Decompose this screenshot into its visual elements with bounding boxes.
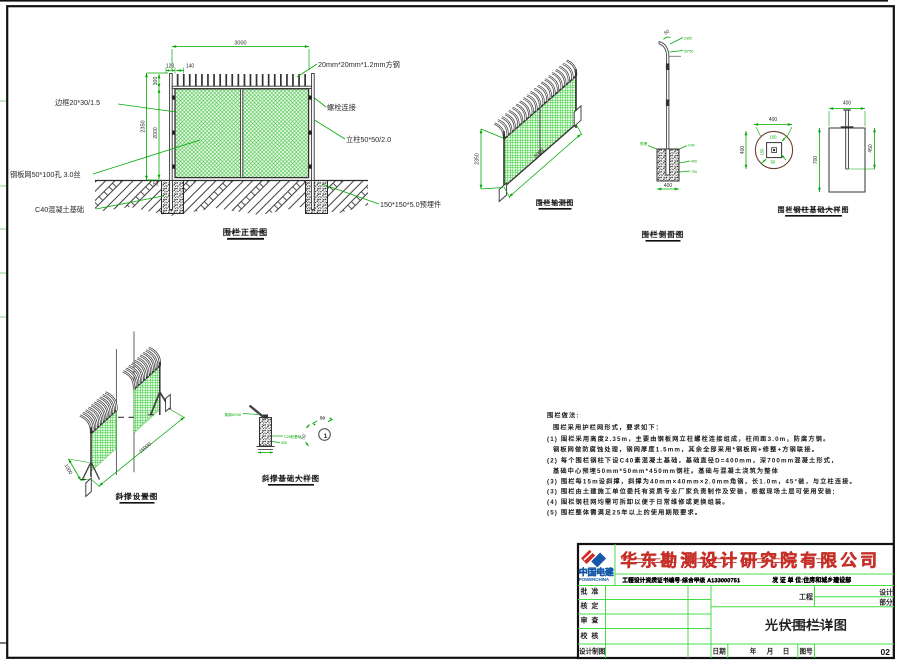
svg-text:400: 400 (664, 183, 673, 189)
svg-text:图号: 图号 (800, 647, 814, 656)
svg-text:400: 400 (843, 101, 852, 107)
svg-text:50: 50 (153, 182, 159, 188)
svg-text:700: 700 (691, 170, 697, 174)
svg-text:光伏围栏详图: 光伏围栏详图 (765, 617, 848, 632)
svg-text:围栏采用护栏网形式，要求如下：: 围栏采用护栏网形式，要求如下： (553, 424, 663, 432)
svg-text:450: 450 (868, 144, 874, 153)
svg-text:斜撑设置图: 斜撑设置图 (115, 492, 159, 501)
svg-text:140: 140 (186, 64, 195, 70)
svg-text:300: 300 (153, 77, 159, 86)
svg-text:工程: 工程 (799, 592, 813, 601)
svg-text:02: 02 (881, 647, 891, 657)
svg-text:设计: 设计 (879, 588, 893, 597)
svg-text:日: 日 (783, 648, 790, 656)
svg-text:边框20*30/1.5: 边框20*30/1.5 (55, 98, 100, 107)
svg-text:钢板网做防腐蚀处理，钢网厚度1.5mm，其余全部采用*钢板网: 钢板网做防腐蚀处理，钢网厚度1.5mm，其余全部采用*钢板网+修整+方钢联接。 (553, 446, 819, 454)
svg-text:围栏侧面图: 围栏侧面图 (642, 230, 685, 239)
svg-text:POWERCHINA: POWERCHINA (579, 577, 610, 582)
svg-text:部分: 部分 (879, 598, 893, 607)
svg-text:钢板网50*100孔 3.0丝: 钢板网50*100孔 3.0丝 (10, 170, 81, 179)
svg-text:核 定: 核 定 (581, 601, 599, 610)
svg-text:批 准: 批 准 (581, 587, 599, 596)
svg-text:(5) 围栏整体需满足25年以上的使用期限要求。: (5) 围栏整体需满足25年以上的使用期限要求。 (547, 509, 702, 517)
svg-text:(4) 围栏钢柱网均需可拆卸以便于日常维修或更换组装。: (4) 围栏钢柱网均需可拆卸以便于日常维修或更换组装。 (547, 498, 730, 506)
svg-text:立柱50*50/2.0: 立柱50*50/2.0 (346, 135, 391, 144)
svg-text:(2) 每个围栏钢柱下设C40素混凝土基础，基础直径D=40: (2) 每个围栏钢柱下设C40素混凝土基础，基础直径D=400mm，深700mm… (547, 457, 838, 465)
svg-text:月: 月 (766, 648, 774, 656)
svg-text:2350: 2350 (475, 153, 481, 165)
svg-text:(3) 围栏由土建施工单位委托有资质专业厂家负责制作及安装，: (3) 围栏由土建施工单位委托有资质专业厂家负责制作及安装，根据现场土层可使用安… (547, 488, 836, 496)
svg-text:400: 400 (691, 160, 697, 164)
svg-text:400: 400 (740, 146, 746, 155)
svg-text:3000: 3000 (234, 41, 246, 47)
svg-text:华东勘测设计研究院有限公司: 华东勘测设计研究院有限公司 (621, 550, 881, 570)
svg-text:校 核: 校 核 (581, 631, 599, 640)
svg-text:300: 300 (281, 441, 287, 445)
svg-text:C40: C40 (688, 144, 695, 148)
svg-text:50: 50 (320, 416, 326, 421)
svg-text:20mm*20mm*1.2mm方钢: 20mm*20mm*1.2mm方钢 (318, 60, 400, 69)
svg-text:角钢40*40: 角钢40*40 (224, 412, 241, 417)
svg-text:2350: 2350 (140, 120, 146, 132)
svg-text:(1) 围栏采用高度2.35m，主要由钢板网立柱螺栓连接组成: (1) 围栏采用高度2.35m，主要由钢板网立柱螺栓连接组成，柱间距3.0m，防… (547, 435, 830, 443)
svg-text:120: 120 (166, 64, 175, 70)
svg-text:700: 700 (813, 156, 819, 165)
svg-text:2350: 2350 (684, 37, 692, 41)
svg-text:2000: 2000 (153, 127, 159, 139)
svg-text:基础中心预埋50mm*50mm*450mm钢柱。基础与混凝土: 基础中心预埋50mm*50mm*450mm钢柱。基础与混凝土浇筑为整体 (552, 467, 779, 475)
svg-text:围栏做法:: 围栏做法: (547, 412, 580, 420)
svg-text:年: 年 (750, 647, 757, 656)
svg-text:50: 50 (771, 160, 776, 165)
svg-text:(3) 围栏每15m设斜撑，斜撑为40mm×40mm×2.0: (3) 围栏每15m设斜撑，斜撑为40mm×40mm×2.0mm角钢，长1.0m… (547, 478, 857, 486)
svg-text:斜撑基础大样图: 斜撑基础大样图 (261, 474, 320, 483)
svg-text:工程设计资质证书编号·综合甲级 A133000751: 工程设计资质证书编号·综合甲级 A133000751 (622, 576, 741, 584)
svg-text:150: 150 (770, 135, 778, 140)
svg-text:150: 150 (760, 148, 765, 156)
svg-text:预埋: 预埋 (640, 141, 648, 146)
svg-text:1: 1 (324, 433, 328, 440)
svg-text:150*150*5.0预埋件: 150*150*5.0预埋件 (380, 200, 441, 209)
svg-text:设计制图: 设计制图 (579, 647, 606, 656)
svg-text:C40混凝土基础: C40混凝土基础 (35, 205, 84, 214)
svg-text:日期: 日期 (713, 647, 727, 656)
svg-text:400: 400 (769, 117, 778, 123)
svg-text:审 查: 审 查 (581, 616, 600, 625)
svg-text:50*50: 50*50 (684, 50, 693, 54)
svg-text:发 证 单 位:住房和城乡建设部: 发 证 单 位:住房和城乡建设部 (771, 576, 851, 584)
svg-text:螺栓连接: 螺栓连接 (327, 103, 356, 112)
svg-text:C25砼基础: C25砼基础 (284, 434, 302, 439)
